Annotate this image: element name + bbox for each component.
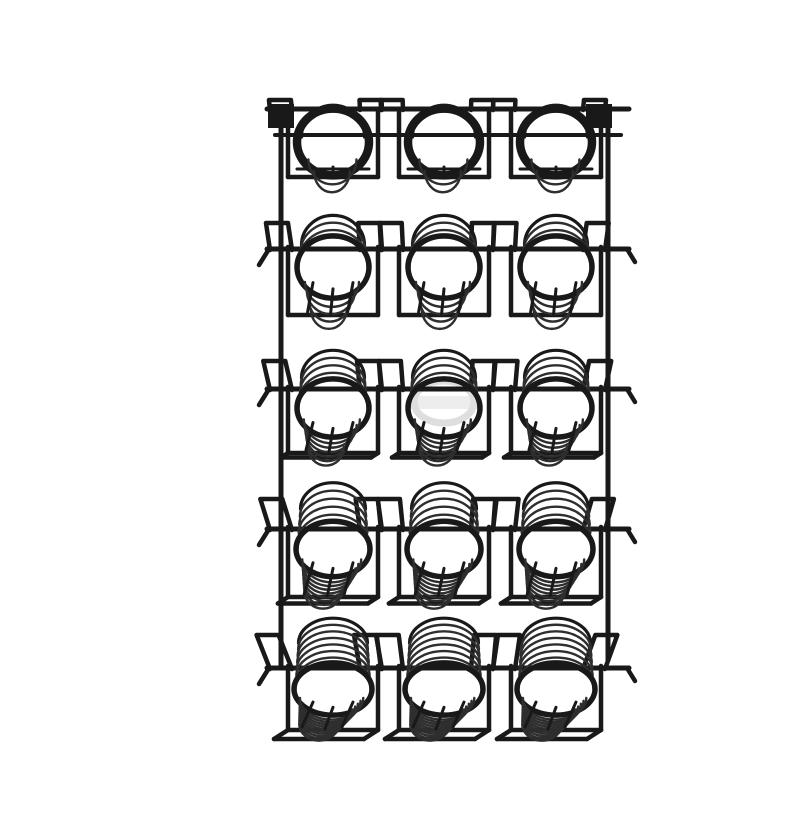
wire-rack-illustration <box>40 16 800 816</box>
product-photo: Black wire wall-mount display rack with … <box>40 16 800 816</box>
